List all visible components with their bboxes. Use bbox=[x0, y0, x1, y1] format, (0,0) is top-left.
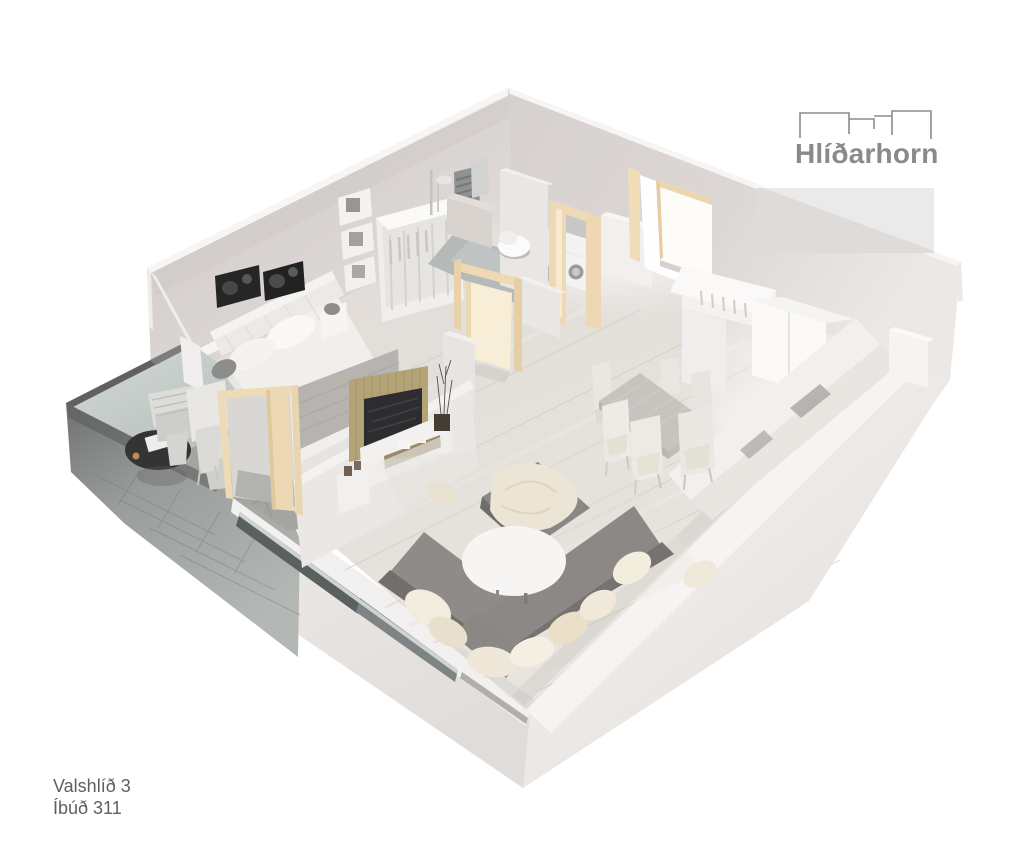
svg-text:Valshlíð 3: Valshlíð 3 bbox=[53, 776, 131, 796]
svg-text:Hlíðarhorn: Hlíðarhorn bbox=[795, 138, 939, 169]
svg-text:Íbúð 311: Íbúð 311 bbox=[53, 798, 122, 818]
